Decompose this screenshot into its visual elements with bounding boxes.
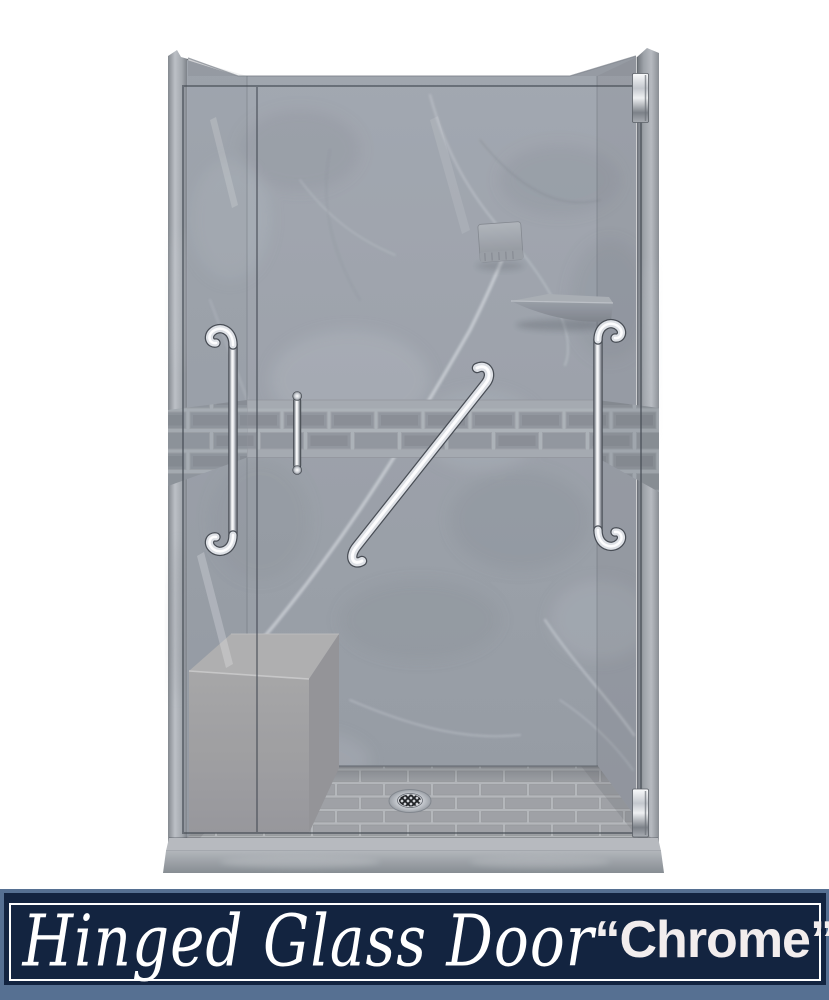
banner-background: Hinged Glass Door “Chrome”	[4, 893, 826, 985]
door-hinge-top	[633, 74, 649, 123]
door-handle	[293, 392, 302, 475]
shower-enclosure-render	[0, 0, 829, 889]
hinged-glass-door	[183, 86, 641, 833]
banner-title: Hinged Glass Door	[23, 899, 595, 982]
shower-base-curb	[163, 838, 664, 873]
door-hinge-bottom	[633, 789, 649, 837]
banner-frame: Hinged Glass Door “Chrome”	[9, 903, 821, 981]
banner-finish-label: “Chrome”	[595, 910, 829, 974]
product-banner: Hinged Glass Door “Chrome”	[0, 889, 829, 1000]
product-image: Hinged Glass Door “Chrome”	[0, 0, 829, 1000]
